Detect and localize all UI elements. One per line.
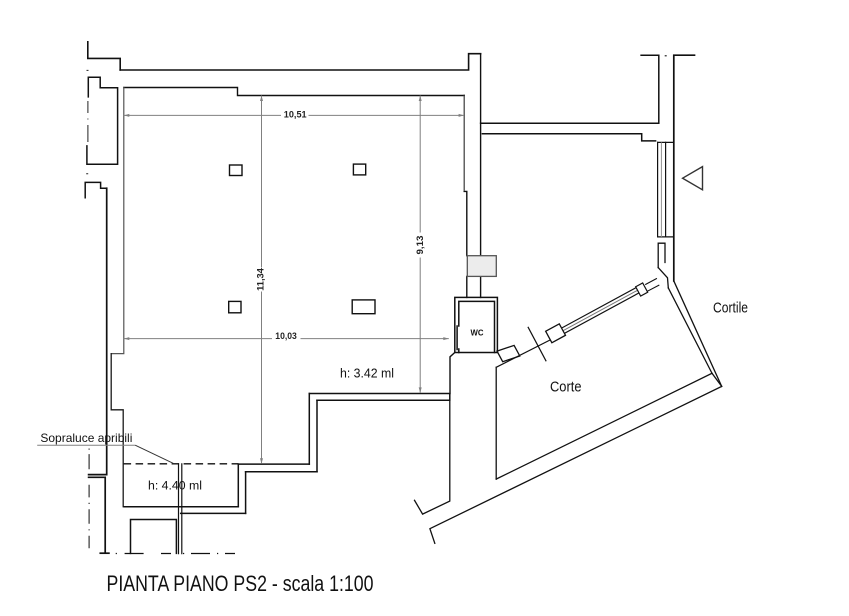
svg-text:10,51: 10,51 [284,110,307,121]
svg-text:Cortile: Cortile [713,301,748,317]
svg-text:h: 4.40 ml: h: 4.40 ml [148,480,202,492]
svg-text:h: 3.42 ml: h: 3.42 ml [340,367,394,381]
svg-text:WC: WC [471,328,484,338]
svg-text:PIANTA PIANO PS2 - scala 1:1: PIANTA PIANO PS2 - scala 1:100 [107,571,374,596]
svg-text:11,34: 11,34 [255,267,266,291]
svg-text:9,13: 9,13 [415,236,426,255]
svg-text:Sopraluce apribili: Sopraluce apribili [40,431,132,445]
svg-text:Corte: Corte [550,380,582,396]
svg-text:10,03: 10,03 [275,331,297,342]
